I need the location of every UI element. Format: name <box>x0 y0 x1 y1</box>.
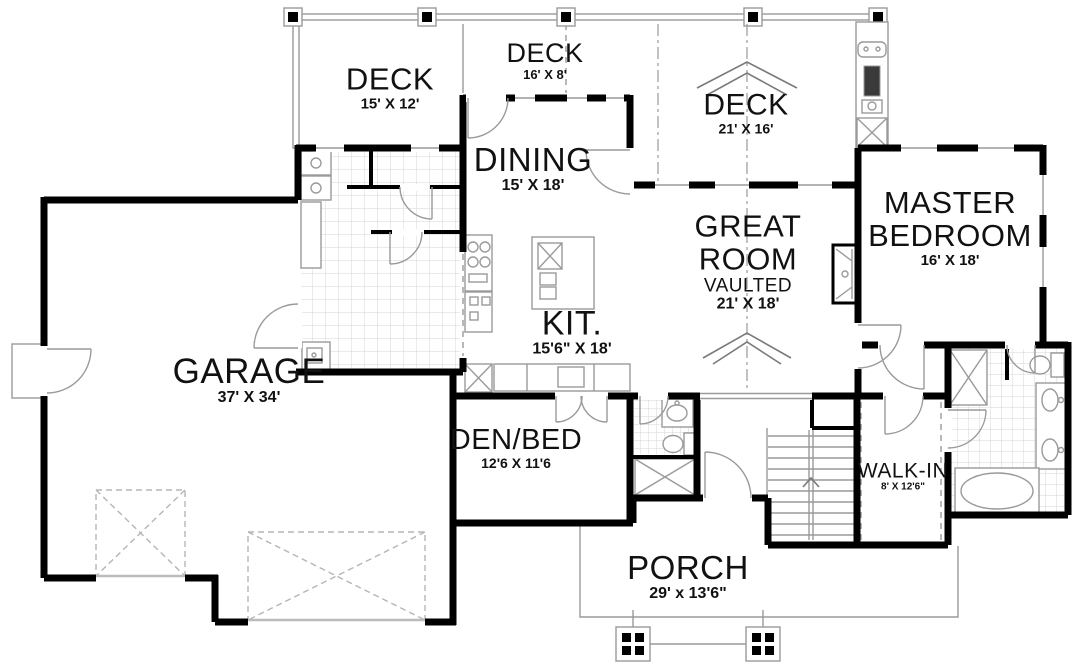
room-dims: 29' x 13'6" <box>627 586 749 603</box>
master-bath-tub <box>955 468 1039 514</box>
room-name: DINING <box>474 143 593 178</box>
garage-door-right <box>248 532 425 620</box>
room-label-kitchen: KIT. 15'6" X 18' <box>532 306 611 359</box>
kitchen-island <box>532 237 594 309</box>
room-dims: 12'6 X 11'6 <box>450 456 582 471</box>
bbq-grill <box>856 22 888 148</box>
room-name: GARAGE <box>173 353 326 390</box>
room-name: PORCH <box>627 551 749 586</box>
room-label-deck-right: DECK 21' X 16' <box>703 90 788 137</box>
room-subtitle: VAULTED <box>668 276 828 296</box>
floor-plan: DECK 15' X 12' DECK 16' X 8' DECK 21' X … <box>0 0 1076 664</box>
room-label-great-room: GREAT ROOM VAULTED 21' X 18' <box>668 211 828 314</box>
room-label-deck-mid: DECK 16' X 8' <box>506 39 583 81</box>
room-label-walk-in: WALK-IN 8' X 12'6" <box>858 461 948 494</box>
kitchen-south-counter <box>494 364 630 391</box>
room-dims: 16' X 8' <box>506 67 583 81</box>
room-dims: 8' X 12'6" <box>858 483 948 494</box>
room-label-porch: PORCH 29' x 13'6" <box>627 551 749 603</box>
mudroom-garage-door <box>254 304 298 348</box>
shower <box>950 350 987 405</box>
room-dims: 15' X 12' <box>346 96 434 112</box>
room-name: DEN/BED <box>450 425 582 456</box>
room-name: DECK <box>346 64 434 97</box>
room-dims: 16' X 18' <box>855 253 1045 269</box>
side-door-stoop <box>12 344 42 398</box>
hall-closet <box>635 459 695 495</box>
staircase <box>767 428 855 543</box>
room-name: MASTER BEDROOM <box>855 187 1045 253</box>
porch-post-left <box>616 627 650 661</box>
room-dims: 37' X 34' <box>173 390 326 407</box>
garage-side-door <box>47 349 91 393</box>
room-label-dining: DINING 15' X 18' <box>474 143 593 195</box>
vestibule-door <box>880 345 924 389</box>
room-name: KIT. <box>532 306 611 342</box>
room-label-deck-left: DECK 15' X 12' <box>346 64 434 113</box>
porch-post-right <box>746 627 780 661</box>
dining-east-door <box>586 150 630 194</box>
room-label-den-bed: DEN/BED 12'6 X 11'6 <box>450 425 582 471</box>
room-dims: 21' X 18' <box>668 296 828 313</box>
room-name: WALK-IN <box>858 461 948 483</box>
room-label-garage: GARAGE 37' X 34' <box>173 353 326 407</box>
room-name: GREAT ROOM <box>668 211 828 277</box>
range-counter <box>465 235 492 332</box>
walk-in-door <box>885 396 923 434</box>
front-door <box>705 452 751 498</box>
room-name: DECK <box>703 90 788 122</box>
garage-door-left <box>96 490 185 576</box>
deck-dining-door <box>468 98 508 138</box>
room-dims: 15' X 18' <box>474 178 593 195</box>
room-label-master-bedroom: MASTER BEDROOM 16' X 18' <box>855 187 1045 269</box>
master-bath-vanity <box>1036 383 1066 469</box>
deck-posts <box>284 8 887 26</box>
room-name: DECK <box>506 39 583 68</box>
room-dims: 21' X 16' <box>703 121 788 136</box>
pantry-closet <box>465 364 492 392</box>
room-dims: 15'6" X 18' <box>532 342 611 359</box>
